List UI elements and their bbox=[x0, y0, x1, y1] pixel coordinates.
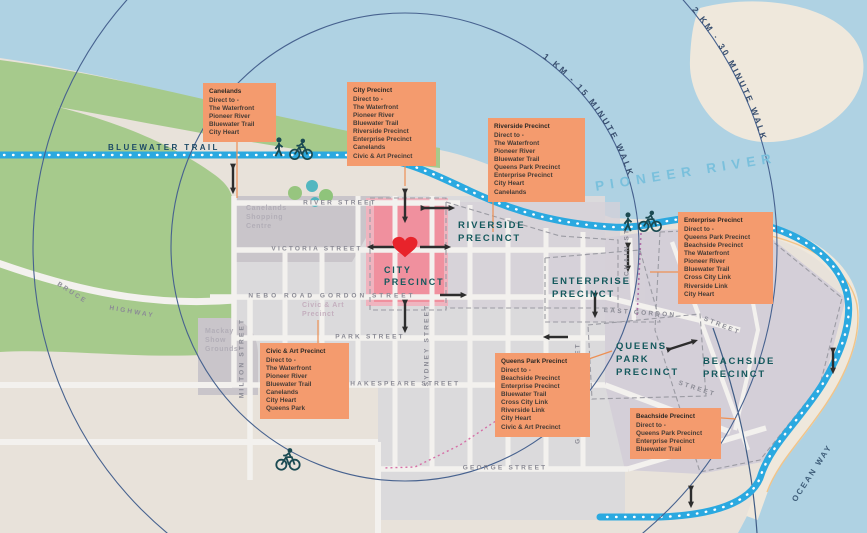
precinct-walkability-map: 1 KM - 15 MINUTE WALK 2 KM · 30 MINUTE W… bbox=[0, 0, 867, 533]
pond bbox=[306, 180, 318, 192]
south-blocks bbox=[378, 385, 625, 520]
map-canvas: 1 KM - 15 MINUTE WALK 2 KM · 30 MINUTE W… bbox=[0, 0, 867, 533]
tree-cluster bbox=[288, 186, 302, 200]
